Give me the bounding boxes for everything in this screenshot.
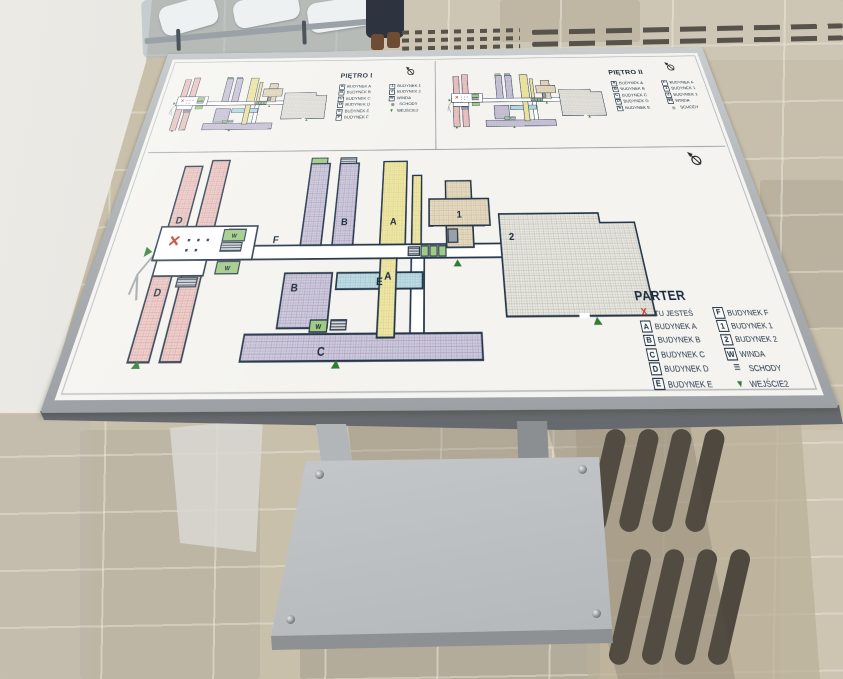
legend-item: X TU JESTEŚ [637,306,696,320]
legend-label: WINDA [675,99,691,103]
legend-symbol: 1 [389,84,395,89]
legend-item: C BUDYNEK C [645,347,706,362]
legend-symbol: 2 [389,90,395,95]
legend-item: F BUDYNEK F [712,306,771,320]
legend-symbol: 1 [663,86,671,91]
legend-symbol: A [339,84,345,89]
legend-label: BUDYNEK E [344,109,369,113]
legend-label: BUDYNEK F [344,116,369,120]
legend-label: BUDYNEK C [660,349,706,360]
legend-pietro1-col1: A BUDYNEK A B BUDYNEK B C BUDYNEK C D BU… [335,84,371,122]
legend-label: WEJŚCIE2 [397,109,419,113]
legend-item: F BUDYNEK F [335,115,369,122]
legend-pietro1-col2: 1 BUDYNEK 1 2 BUDYNEK 2 W WINDA ≡ SCHODY… [388,83,421,114]
legend-label: BUDYNEK D [345,103,370,107]
legend-symbol: D [615,99,622,104]
legend-symbol: C [646,348,659,360]
screw [578,465,587,474]
panel-title-pietro2: PIĘTRO II [608,69,644,76]
legend-symbol: X [637,306,653,320]
map-label-building-c: C [316,344,325,360]
legend-item: B BUDYNEK B [643,333,703,347]
legend-label: WEJŚCIE2 [748,378,790,389]
map-label-building-b: B [341,216,349,228]
legend-symbol: D [337,103,344,108]
legend-item: ≡ SCHODY [668,104,703,111]
panel-title-pietro1: PIĘTRO I [340,73,373,80]
floorplan-pietro2 [447,73,609,129]
legend-symbol: 1 [716,320,730,332]
screw [315,470,324,479]
legend-label: BUDYNEK B [620,87,645,91]
legend-label: BUDYNEK B [657,335,702,345]
legend-label: BUDYNEK B [346,91,371,95]
legend-symbol: 2 [720,334,734,346]
floorplans-svg: D D F B B E A A C 1 2 W W W [54,53,823,400]
legend-symbol: A [640,321,653,333]
legend-item: A BUDYNEK A [640,319,699,333]
legend-symbol: ▼ [388,108,395,114]
legend-label: BUDYNEK D [623,100,649,104]
legend-item: ≡ SCHODY [728,361,791,376]
legend-label: BUDYNEK 1 [671,87,696,91]
legend-label: BUDYNEK A [619,81,644,85]
legend-label: TU JESTEŚ [653,308,694,318]
compass-icon [664,62,675,70]
legend-item: E BUDYNEK E [616,105,651,112]
legend-symbol: E [336,109,343,115]
board-panel: D D F B B E A A C 1 2 W W W PIĘTRO I A B… [54,53,823,400]
legend-label: SCHODY [399,102,417,106]
legend-label: BUDYNEK C [622,93,648,97]
legend-symbol: B [338,90,344,95]
legend-item: ▼ WEJŚCIE2 [388,108,421,115]
legend-label: WINDA [738,349,766,360]
legend-item: D BUDYNEK D [649,361,711,376]
legend-symbol: B [612,87,619,92]
legend-label: BUDYNEK A [347,85,371,89]
legend-symbol: 2 [665,92,673,97]
compass-icon [406,67,414,75]
legend-item: E BUDYNEK E [652,376,715,392]
legend-symbol: W [724,348,738,360]
panel-title-parter: PARTER [633,288,687,304]
legend-symbol: C [613,93,620,98]
legend-label: BUDYNEK A [654,321,698,331]
legend-symbol: D [649,363,662,376]
legend-label: BUDYNEK E [625,106,651,110]
map-label-building-f: F [272,233,281,246]
legend-symbol: ≡ [668,104,679,112]
map-label-winda: W [315,322,322,330]
legend-item: 1 BUDYNEK 1 [716,319,776,333]
legend-label: BUDYNEK C [346,97,371,101]
legend-label: BUDYNEK F [669,81,694,85]
map-label-building-1: 1 [456,208,462,220]
floorplan-parter [105,155,667,370]
legend-symbol: B [643,334,656,346]
legend-label: BUDYNEK E [667,378,714,389]
legend-symbol: A [610,81,617,86]
sign-board: D D F B B E A A C 1 2 W W W PIĘTRO I A B… [40,47,839,413]
legend-label: BUDYNEK F [726,307,770,317]
floorplan-pietro1 [163,76,329,132]
legend-label: SCHODY [747,363,783,374]
legend-label: BUDYNEK 1 [730,321,774,331]
legend-symbol: E [616,106,623,112]
legend-label: BUDYNEK 1 [397,84,421,88]
map-label-building-e: E [376,275,384,289]
map-label-building-a: A [384,269,392,283]
legend-symbol: F [335,115,342,121]
compass-icon [687,152,702,165]
map-label-building-a: A [390,215,397,227]
screw [592,609,601,618]
legend-label: BUDYNEK 2 [673,93,699,97]
legend-symbol: F [661,80,668,85]
legend-symbol: F [712,307,725,318]
legend-symbol: C [338,96,344,101]
legend-label: BUDYNEK 2 [397,90,421,94]
legend-item: ▼ WEJŚCIE2 [732,376,795,392]
legend-label: WINDA [397,96,411,100]
legend-symbol: E [652,378,666,391]
legend-label: SCHODY [680,105,700,109]
legend-label: BUDYNEK 2 [734,334,779,344]
legend-label: BUDYNEK D [663,363,710,374]
screw [286,615,295,624]
legend-item: 2 BUDYNEK 2 [719,332,780,346]
